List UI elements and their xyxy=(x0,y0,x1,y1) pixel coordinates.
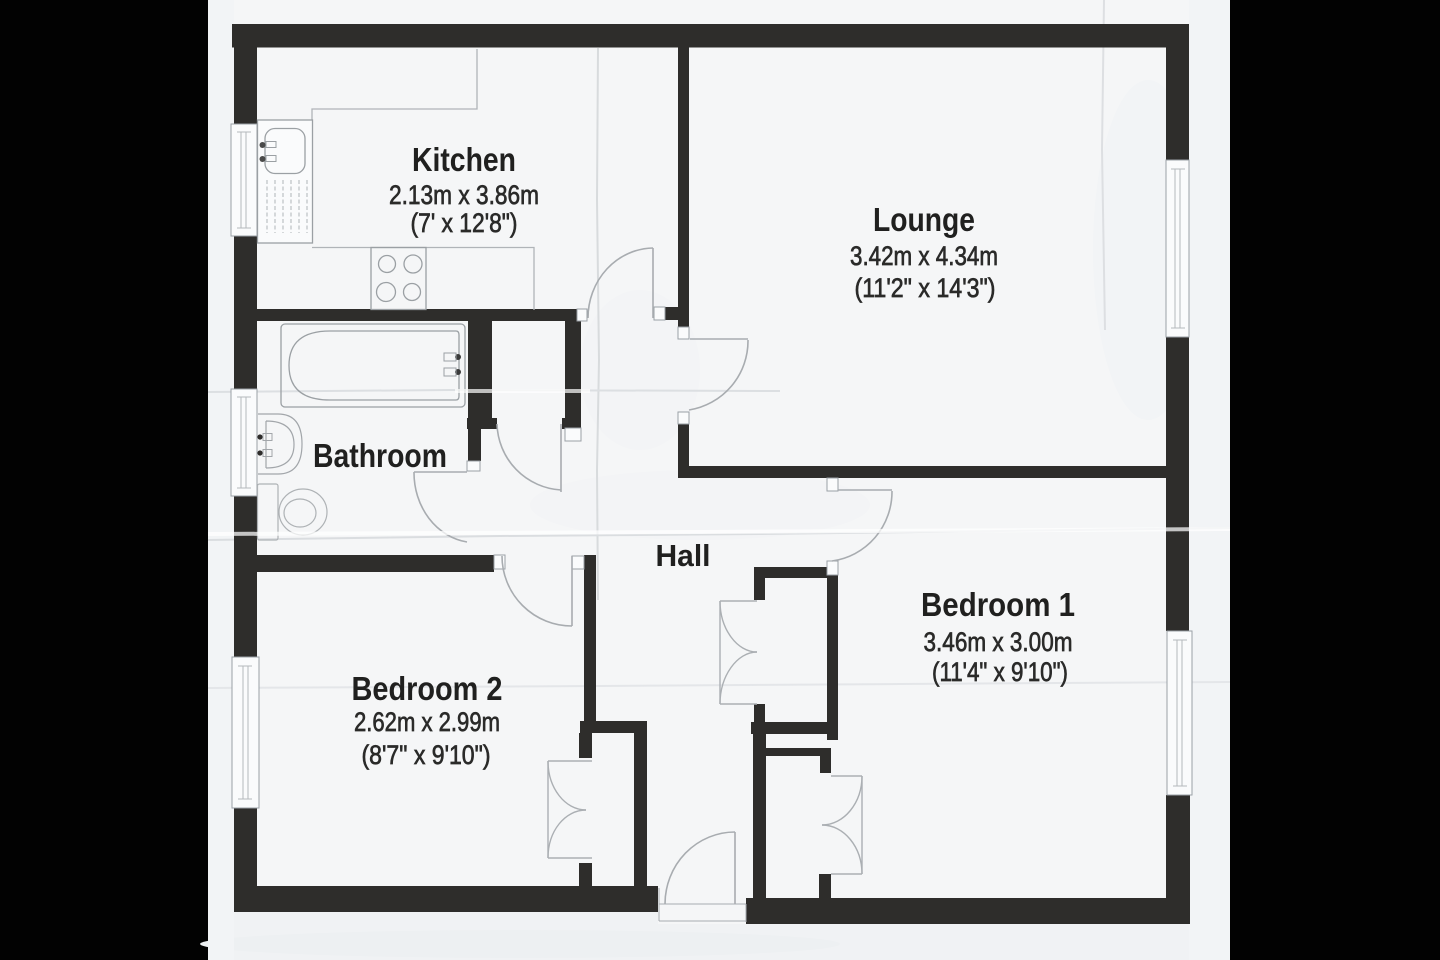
svg-text:3.42m x 4.34m: 3.42m x 4.34m xyxy=(850,241,998,271)
svg-text:(7' x 12'8"): (7' x 12'8") xyxy=(411,208,518,238)
svg-text:Lounge: Lounge xyxy=(873,201,975,238)
svg-text:Kitchen: Kitchen xyxy=(412,141,516,178)
svg-text:(11'4" x 9'10"): (11'4" x 9'10") xyxy=(932,657,1068,687)
svg-text:2.13m x 3.86m: 2.13m x 3.86m xyxy=(389,180,539,210)
svg-text:Bedroom 2: Bedroom 2 xyxy=(352,670,503,707)
svg-text:Bedroom 1: Bedroom 1 xyxy=(921,586,1075,623)
svg-text:2.62m x 2.99m: 2.62m x 2.99m xyxy=(354,707,500,737)
svg-text:Hall: Hall xyxy=(656,538,711,573)
svg-text:Bathroom: Bathroom xyxy=(313,437,447,474)
svg-text:(11'2" x 14'3"): (11'2" x 14'3") xyxy=(855,273,996,303)
svg-text:(8'7" x 9'10"): (8'7" x 9'10") xyxy=(362,740,491,770)
svg-text:3.46m x 3.00m: 3.46m x 3.00m xyxy=(924,627,1073,657)
